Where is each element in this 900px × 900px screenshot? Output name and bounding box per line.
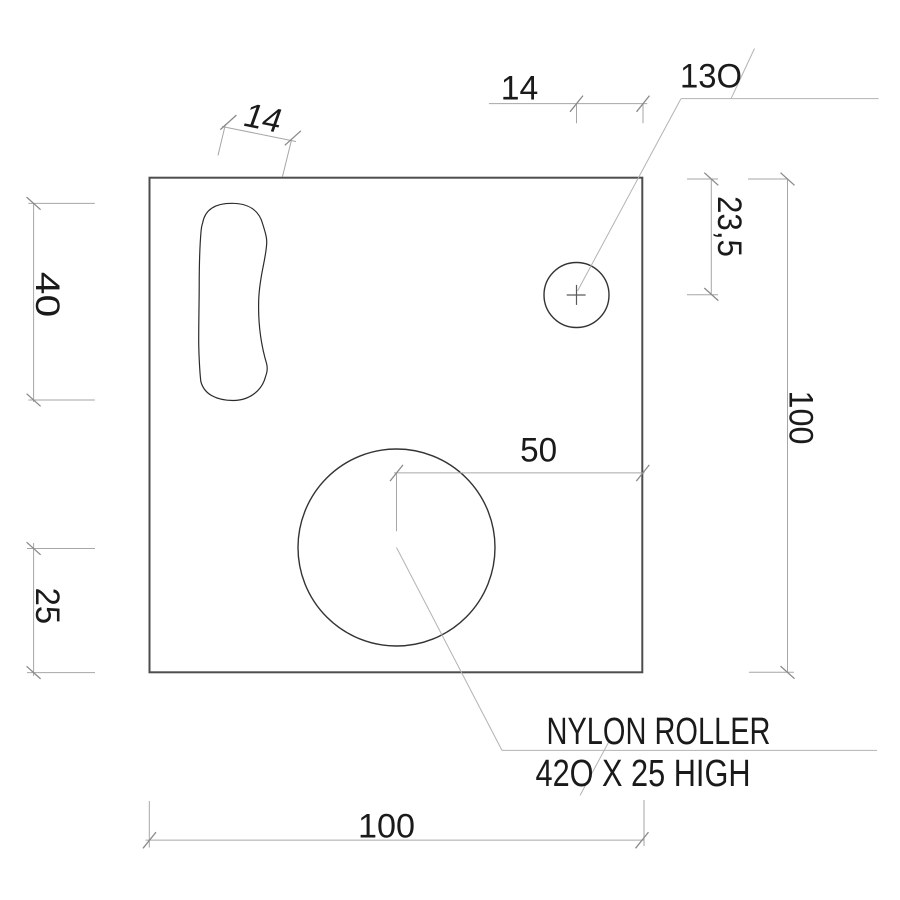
svg-text:100: 100 [782,391,820,445]
svg-text:40: 40 [28,272,66,318]
svg-text:23,5: 23,5 [710,196,748,257]
svg-text:50: 50 [520,432,557,470]
svg-text:13O: 13O [680,58,742,96]
svg-text:14: 14 [501,70,539,108]
svg-text:100: 100 [358,808,415,846]
svg-text:NYLON ROLLER: NYLON ROLLER [547,711,771,753]
svg-text:25: 25 [28,588,66,625]
svg-text:14: 14 [239,97,288,140]
svg-text:42O X 25 HIGH: 42O X 25 HIGH [536,753,751,795]
